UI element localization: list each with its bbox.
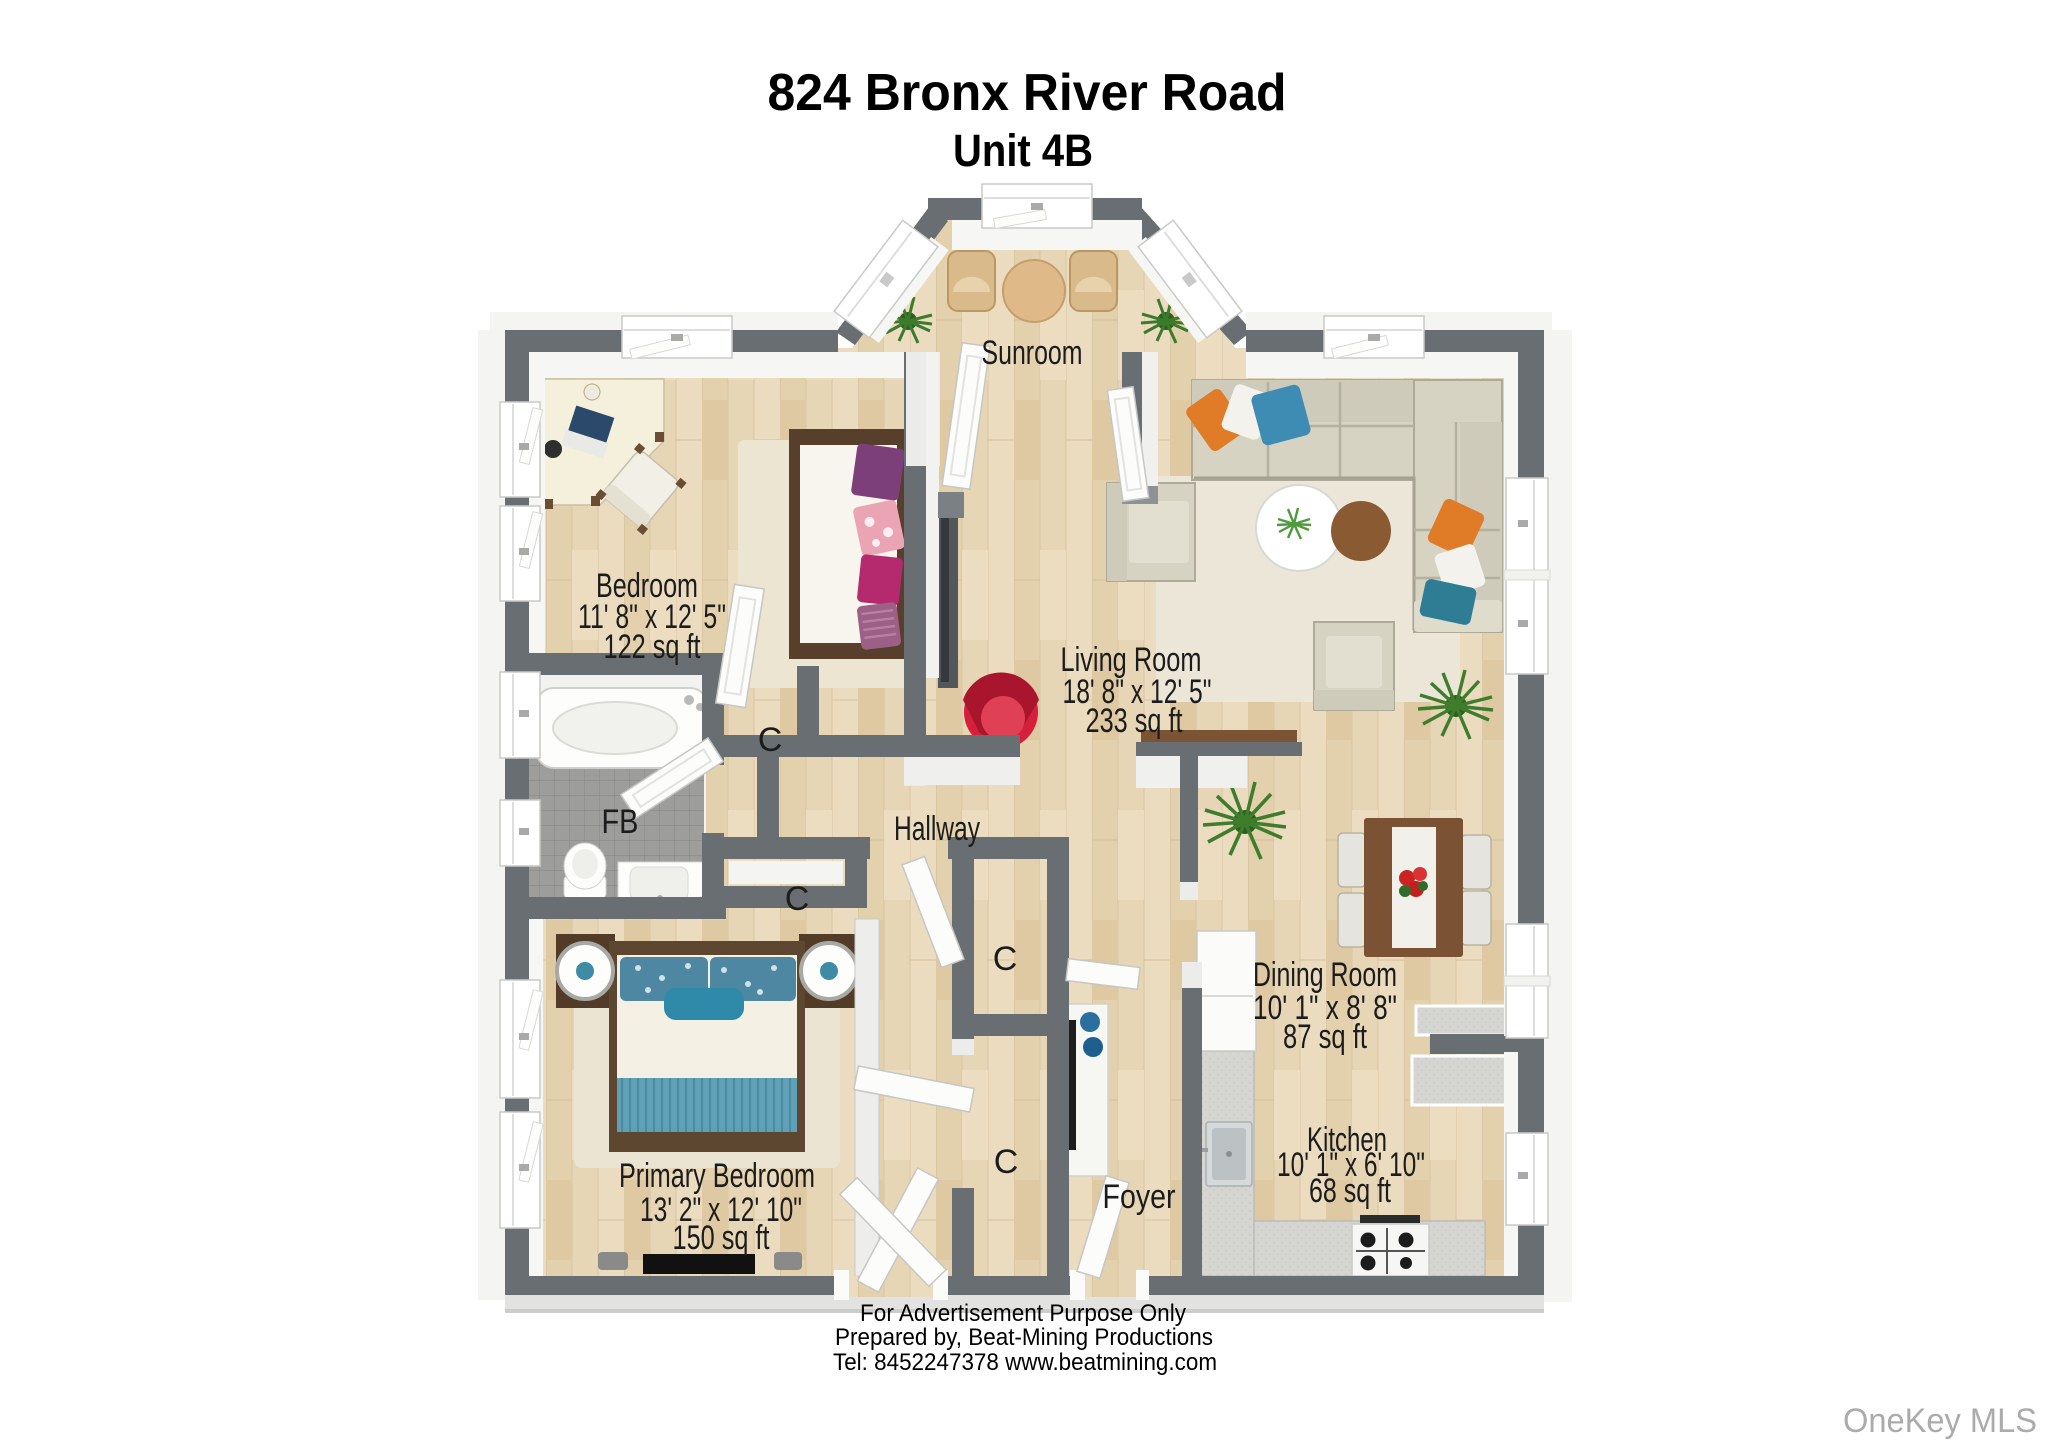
svg-text:122 sq ft: 122 sq ft <box>604 628 701 666</box>
svg-text:C: C <box>994 1143 1019 1181</box>
svg-text:824 Bronx River Road: 824 Bronx River Road <box>768 64 1287 122</box>
svg-text:C: C <box>785 880 810 918</box>
svg-text:Unit 4B: Unit 4B <box>953 125 1093 176</box>
svg-text:For Advertisement Purpose Only: For Advertisement Purpose Only <box>860 1300 1186 1327</box>
svg-text:87 sq ft: 87 sq ft <box>1283 1018 1367 1056</box>
svg-text:150 sq ft: 150 sq ft <box>673 1219 770 1257</box>
svg-text:Primary Bedroom: Primary Bedroom <box>619 1157 815 1195</box>
svg-text:Prepared by, Beat-Mining Produ: Prepared by, Beat-Mining Productions <box>835 1324 1213 1351</box>
svg-text:68 sq ft: 68 sq ft <box>1309 1172 1391 1210</box>
svg-text:OneKey MLS: OneKey MLS <box>1843 1402 2037 1440</box>
svg-text:Hallway: Hallway <box>894 810 980 848</box>
svg-text:C: C <box>993 940 1018 978</box>
svg-text:FB: FB <box>602 803 639 841</box>
svg-text:Tel: 8452247378 www.beatmining: Tel: 8452247378 www.beatmining.com <box>833 1349 1217 1376</box>
svg-text:233 sq ft: 233 sq ft <box>1086 702 1183 740</box>
svg-text:C: C <box>758 721 783 759</box>
svg-text:Foyer: Foyer <box>1103 1178 1176 1216</box>
svg-text:Sunroom: Sunroom <box>982 334 1083 372</box>
